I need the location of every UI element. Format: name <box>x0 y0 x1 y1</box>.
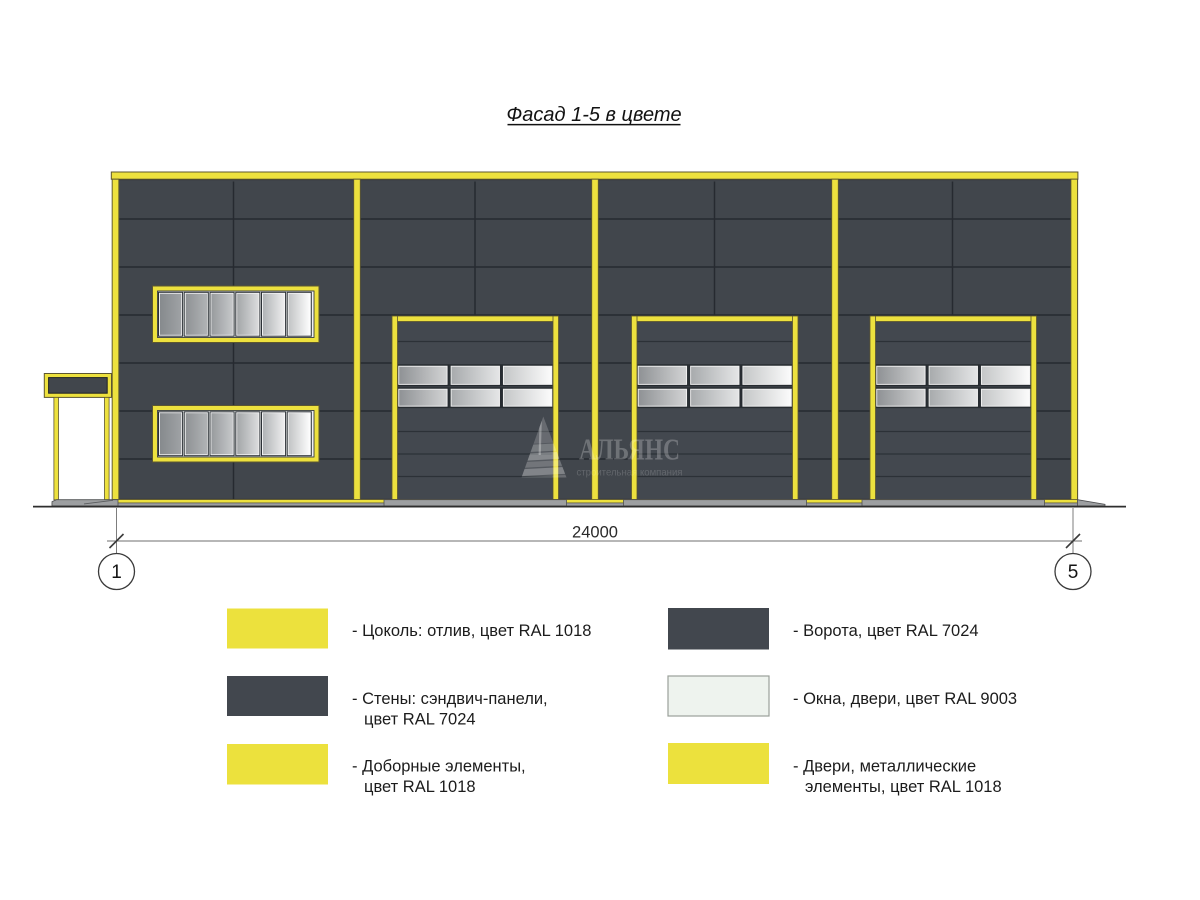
svg-text:- Окна, двери, цвет RAL 9003: - Окна, двери, цвет RAL 9003 <box>793 690 1017 708</box>
svg-text:цвет RAL 1018: цвет RAL 1018 <box>364 778 476 796</box>
svg-text:- Двери, металлические: - Двери, металлические <box>793 758 976 776</box>
svg-text:строительная компания: строительная компания <box>577 467 683 479</box>
svg-text:- Стены: сэндвич-панели,: - Стены: сэндвич-панели, <box>352 690 548 708</box>
svg-text:Фасад 1-5 в цвете: Фасад 1-5 в цвете <box>506 104 681 126</box>
svg-text:АЛЬЯНС: АЛЬЯНС <box>579 432 680 467</box>
svg-text:24000: 24000 <box>572 524 618 542</box>
svg-text:- Доборные элементы,: - Доборные элементы, <box>352 758 526 776</box>
svg-text:- Ворота, цвет RAL 7024: - Ворота, цвет RAL 7024 <box>793 622 979 640</box>
svg-text:цвет RAL 7024: цвет RAL 7024 <box>364 711 476 729</box>
svg-text:- Цоколь: отлив, цвет RAL 1018: - Цоколь: отлив, цвет RAL 1018 <box>352 622 591 640</box>
svg-text:элементы, цвет RAL 1018: элементы, цвет RAL 1018 <box>805 778 1002 796</box>
svg-text:5: 5 <box>1068 562 1079 583</box>
svg-text:1: 1 <box>111 562 122 583</box>
